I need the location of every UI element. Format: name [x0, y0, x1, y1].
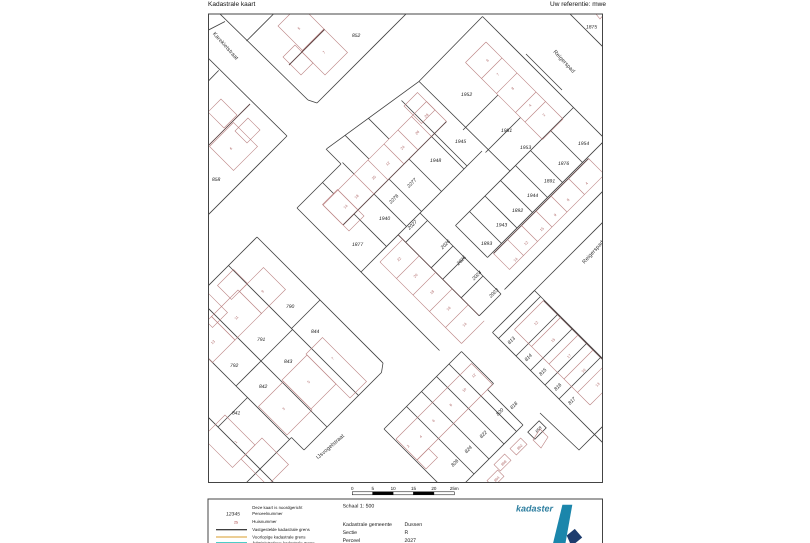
- svg-text:6: 6: [485, 58, 489, 62]
- svg-text:2: 2: [406, 444, 410, 448]
- svg-text:1943: 1943: [496, 223, 507, 229]
- svg-text:10: 10: [391, 486, 397, 491]
- svg-text:20: 20: [431, 486, 437, 491]
- svg-text:Reigerspad: Reigerspad: [552, 49, 576, 74]
- svg-text:1892: 1892: [512, 208, 523, 214]
- svg-text:Sectie: Sectie: [343, 530, 358, 536]
- svg-text:Perceel: Perceel: [343, 538, 361, 543]
- svg-text:18: 18: [429, 289, 435, 295]
- svg-text:15: 15: [539, 226, 545, 232]
- svg-text:817: 817: [567, 396, 577, 406]
- svg-text:824: 824: [464, 445, 474, 455]
- svg-text:813: 813: [507, 336, 517, 346]
- svg-text:16: 16: [446, 306, 452, 312]
- svg-text:1948: 1948: [430, 158, 441, 164]
- svg-text:820: 820: [495, 407, 505, 417]
- svg-text:18: 18: [354, 194, 360, 200]
- svg-text:826: 826: [450, 458, 460, 468]
- svg-text:24: 24: [400, 145, 406, 151]
- svg-text:35: 35: [371, 175, 377, 181]
- svg-text:12: 12: [385, 161, 391, 167]
- svg-text:804: 804: [493, 476, 500, 483]
- svg-text:843: 843: [284, 359, 293, 365]
- svg-text:2276: 2276: [387, 193, 400, 206]
- svg-text:2024: 2024: [470, 270, 483, 283]
- svg-text:814: 814: [524, 353, 534, 363]
- svg-text:815: 815: [538, 367, 548, 377]
- svg-text:818: 818: [509, 401, 519, 411]
- svg-text:5: 5: [297, 26, 301, 30]
- svg-text:1952: 1952: [461, 92, 472, 98]
- svg-text:IJsvogelstraat: IJsvogelstraat: [315, 433, 346, 461]
- svg-text:7: 7: [322, 50, 326, 54]
- svg-text:Reigerspad: Reigerspad: [582, 240, 606, 266]
- svg-text:kadaster: kadaster: [516, 504, 554, 514]
- svg-text:6: 6: [431, 419, 435, 423]
- svg-text:Kadastrale gemeente: Kadastrale gemeente: [343, 522, 392, 528]
- svg-text:1953: 1953: [520, 145, 531, 151]
- svg-text:1951: 1951: [501, 128, 512, 134]
- svg-text:13: 13: [210, 339, 216, 345]
- svg-text:1940: 1940: [379, 216, 390, 222]
- svg-text:25m: 25m: [450, 486, 459, 491]
- svg-text:Dussen: Dussen: [405, 522, 423, 528]
- svg-text:13: 13: [595, 382, 601, 388]
- svg-text:14: 14: [343, 204, 349, 210]
- svg-text:841: 841: [232, 411, 241, 417]
- svg-text:10: 10: [581, 368, 587, 374]
- svg-text:10: 10: [462, 387, 468, 393]
- svg-text:4: 4: [528, 103, 532, 107]
- svg-text:3: 3: [282, 407, 286, 411]
- svg-text:842: 842: [259, 384, 268, 390]
- svg-text:25: 25: [234, 521, 238, 525]
- svg-text:792: 792: [230, 363, 239, 369]
- svg-text:1893: 1893: [481, 241, 492, 247]
- svg-text:1891: 1891: [544, 179, 555, 185]
- svg-text:2023: 2023: [487, 287, 500, 300]
- svg-text:9: 9: [553, 213, 557, 217]
- svg-text:2: 2: [542, 113, 546, 117]
- svg-text:0: 0: [351, 486, 354, 491]
- svg-text:12: 12: [533, 320, 539, 326]
- svg-text:28: 28: [424, 113, 430, 119]
- svg-text:808: 808: [500, 460, 507, 467]
- svg-text:11: 11: [234, 315, 240, 321]
- svg-text:822: 822: [479, 430, 489, 440]
- svg-text:1944: 1944: [527, 193, 538, 199]
- svg-text:4: 4: [585, 181, 589, 185]
- svg-text:7: 7: [331, 356, 335, 360]
- svg-text:1945: 1945: [455, 139, 466, 145]
- svg-text:Voorlopige kadastrale grens: Voorlopige kadastrale grens: [252, 535, 305, 540]
- svg-text:Deze kaart is noordgericht: Deze kaart is noordgericht: [252, 505, 303, 510]
- svg-text:6: 6: [229, 146, 233, 150]
- svg-text:5: 5: [307, 380, 311, 384]
- svg-text:12: 12: [471, 373, 477, 379]
- svg-text:12345: 12345: [226, 512, 240, 518]
- svg-text:816: 816: [553, 382, 563, 392]
- svg-text:2277: 2277: [405, 177, 418, 190]
- svg-text:858: 858: [212, 177, 221, 183]
- svg-text:2027: 2027: [405, 538, 417, 543]
- svg-text:791: 791: [257, 337, 266, 343]
- svg-text:8: 8: [449, 403, 453, 407]
- svg-text:4: 4: [419, 435, 423, 439]
- svg-text:7: 7: [496, 72, 500, 76]
- svg-text:2026: 2026: [439, 239, 452, 252]
- svg-text:8: 8: [566, 198, 570, 202]
- svg-text:Karekietstraat: Karekietstraat: [211, 31, 239, 62]
- svg-text:20: 20: [413, 273, 419, 279]
- svg-text:22: 22: [396, 256, 402, 262]
- svg-text:2025: 2025: [455, 255, 468, 268]
- svg-text:Perceelnummer: Perceelnummer: [252, 511, 283, 516]
- svg-text:1877: 1877: [352, 242, 363, 248]
- svg-text:9: 9: [261, 289, 265, 293]
- svg-text:5: 5: [371, 486, 374, 491]
- svg-text:15: 15: [411, 486, 417, 491]
- svg-text:790: 790: [286, 304, 295, 310]
- svg-text:R: R: [405, 530, 409, 536]
- svg-text:2027: 2027: [406, 219, 419, 232]
- svg-text:12: 12: [523, 240, 529, 246]
- svg-text:1876: 1876: [558, 161, 569, 167]
- svg-text:1875: 1875: [586, 25, 597, 31]
- svg-text:Huisnummer: Huisnummer: [252, 519, 277, 524]
- svg-text:14: 14: [462, 322, 468, 328]
- svg-text:802: 802: [516, 444, 523, 451]
- svg-text:8: 8: [511, 86, 515, 90]
- svg-text:852: 852: [352, 33, 361, 39]
- svg-text:1954: 1954: [578, 141, 589, 147]
- svg-text:15: 15: [550, 337, 556, 343]
- svg-text:844: 844: [311, 329, 320, 335]
- svg-text:Schaal 1: 500: Schaal 1: 500: [343, 504, 375, 510]
- svg-text:26: 26: [415, 130, 421, 136]
- svg-text:Vastgestelde kadastrale grens: Vastgestelde kadastrale grens: [252, 527, 309, 532]
- svg-text:14: 14: [513, 257, 519, 263]
